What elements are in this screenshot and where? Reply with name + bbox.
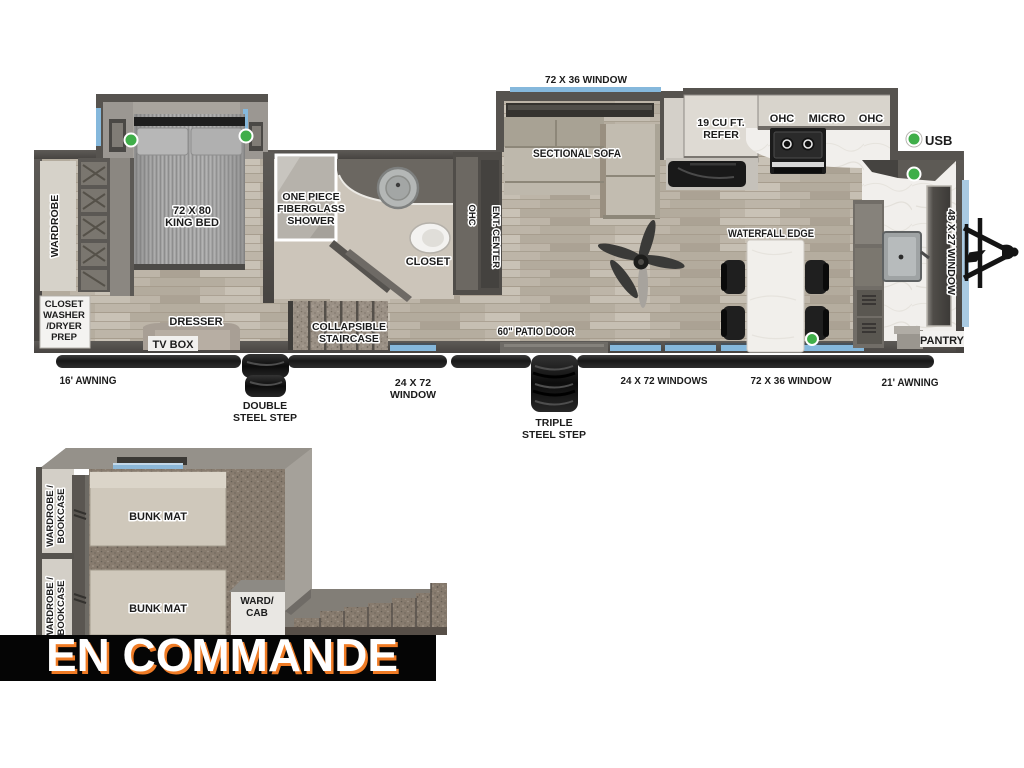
svg-text:72 X 36 WINDOW: 72 X 36 WINDOW — [545, 74, 627, 86]
svg-text:CLOSET: CLOSET — [45, 299, 84, 310]
svg-text:16' AWNING: 16' AWNING — [60, 375, 117, 387]
svg-text:TV BOX: TV BOX — [153, 339, 195, 351]
svg-text:WARDROBE: WARDROBE — [49, 195, 61, 257]
svg-text:PREP: PREP — [51, 332, 78, 343]
svg-text:19 CU FT.: 19 CU FT. — [697, 117, 744, 129]
svg-text:TRIPLE: TRIPLE — [535, 417, 572, 429]
svg-text:/DRYER: /DRYER — [46, 321, 82, 332]
svg-text:MICRO: MICRO — [809, 113, 846, 125]
svg-text:21' AWNING: 21' AWNING — [882, 377, 939, 389]
svg-text:24 X 72: 24 X 72 — [395, 377, 431, 389]
svg-text:72 X 80: 72 X 80 — [173, 205, 211, 217]
svg-text:OHC: OHC — [466, 204, 477, 225]
svg-text:PANTRY: PANTRY — [920, 335, 965, 347]
svg-text:DOUBLE: DOUBLE — [243, 400, 287, 412]
svg-text:STAIRCASE: STAIRCASE — [319, 333, 379, 345]
svg-text:WINDOW: WINDOW — [390, 389, 436, 401]
svg-text:BOOKCASE: BOOKCASE — [56, 489, 67, 544]
svg-text:COLLAPSIBLE: COLLAPSIBLE — [312, 321, 386, 333]
svg-text:WASHER: WASHER — [43, 310, 85, 321]
svg-text:BOOKCASE: BOOKCASE — [56, 581, 67, 636]
svg-text:KING BED: KING BED — [165, 217, 219, 229]
svg-text:WARD/: WARD/ — [240, 596, 274, 607]
svg-text:24 X 72 WINDOWS: 24 X 72 WINDOWS — [621, 375, 708, 387]
svg-text:FIBERGLASS: FIBERGLASS — [277, 203, 345, 215]
svg-text:WATERFALL EDGE: WATERFALL EDGE — [728, 228, 814, 240]
svg-text:DRESSER: DRESSER — [169, 316, 222, 328]
svg-text:CLOSET: CLOSET — [406, 256, 451, 268]
svg-text:USB: USB — [925, 133, 952, 148]
svg-text:STEEL STEP: STEEL STEP — [522, 429, 586, 441]
svg-text:ENT. CENTER: ENT. CENTER — [490, 206, 501, 268]
svg-text:STEEL STEP: STEEL STEP — [233, 412, 297, 424]
svg-text:72 X 36 WINDOW: 72 X 36 WINDOW — [751, 375, 832, 387]
svg-text:60" PATIO DOOR: 60" PATIO DOOR — [498, 326, 575, 338]
svg-text:48 X 27 WINDOW: 48 X 27 WINDOW — [945, 209, 956, 296]
svg-text:OHC: OHC — [859, 113, 884, 125]
svg-text:EN COMMANDE: EN COMMANDE — [46, 629, 398, 681]
svg-text:REFER: REFER — [703, 129, 739, 141]
svg-text:BUNK MAT: BUNK MAT — [129, 511, 187, 523]
svg-text:OHC: OHC — [770, 113, 795, 125]
svg-text:SHOWER: SHOWER — [287, 215, 335, 227]
svg-text:CAB: CAB — [246, 608, 268, 619]
svg-text:BUNK MAT: BUNK MAT — [129, 603, 187, 615]
svg-text:WARDROBE /: WARDROBE / — [45, 485, 56, 547]
svg-text:SECTIONAL SOFA: SECTIONAL SOFA — [533, 148, 621, 160]
svg-text:ONE PIECE: ONE PIECE — [282, 191, 339, 203]
